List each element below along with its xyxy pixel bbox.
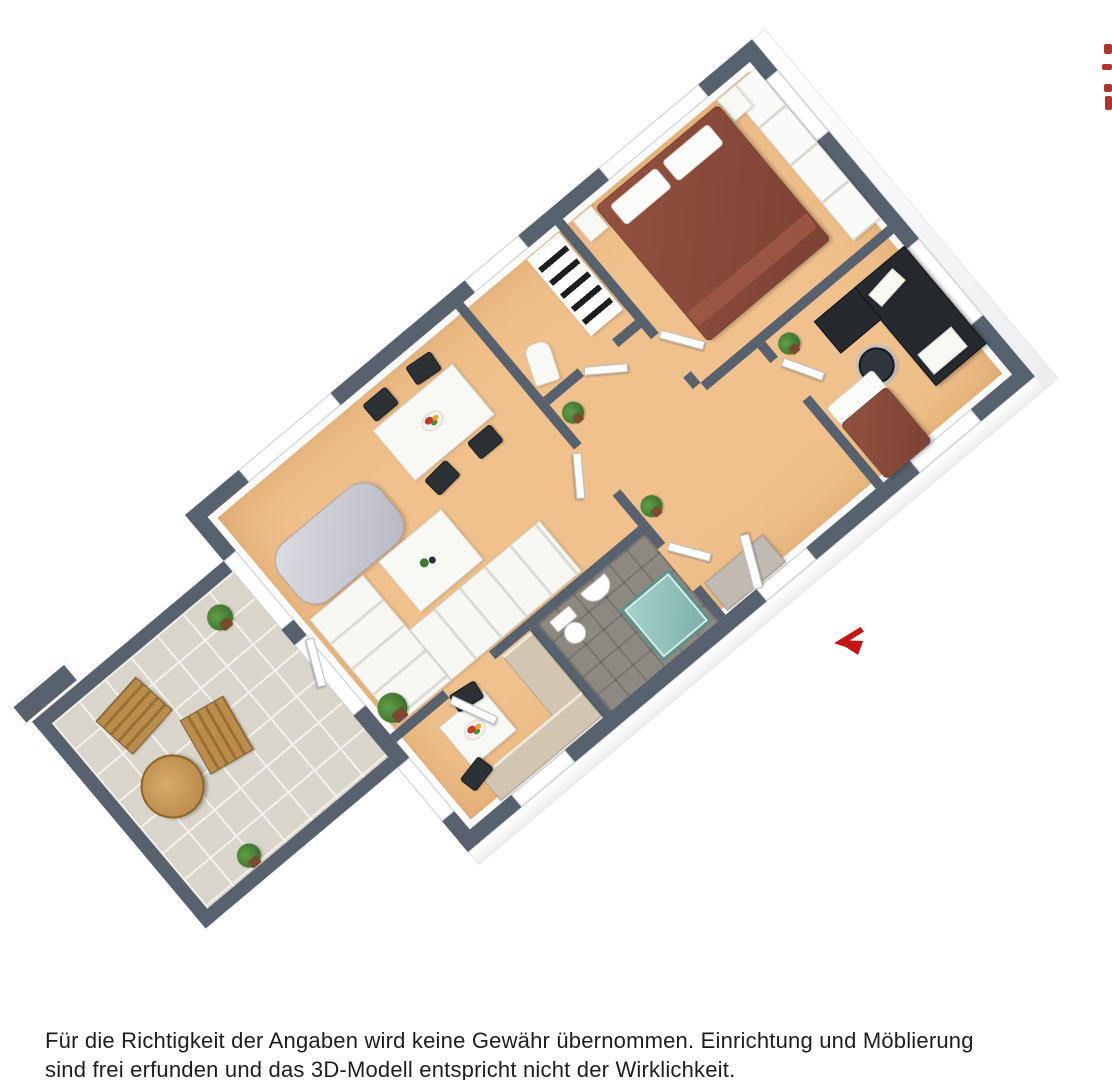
floorplan-canvas: Für die Richtigkeit der Angaben wird kei…	[0, 0, 1112, 1080]
watermark-fragment	[1105, 96, 1112, 110]
entrance-arrow-icon	[834, 627, 864, 655]
disclaimer-line-1: Für die Richtigkeit der Angaben wird kei…	[45, 1026, 1065, 1055]
watermark-fragment	[1104, 44, 1112, 54]
disclaimer-line-2: sind frei erfunden und das 3D-Modell ent…	[45, 1055, 1065, 1080]
floorplan-3d	[185, 39, 1035, 852]
disclaimer-text: Für die Richtigkeit der Angaben wird kei…	[45, 1026, 1065, 1080]
watermark-fragment	[1102, 64, 1112, 70]
watermark-fragment	[1104, 84, 1112, 92]
